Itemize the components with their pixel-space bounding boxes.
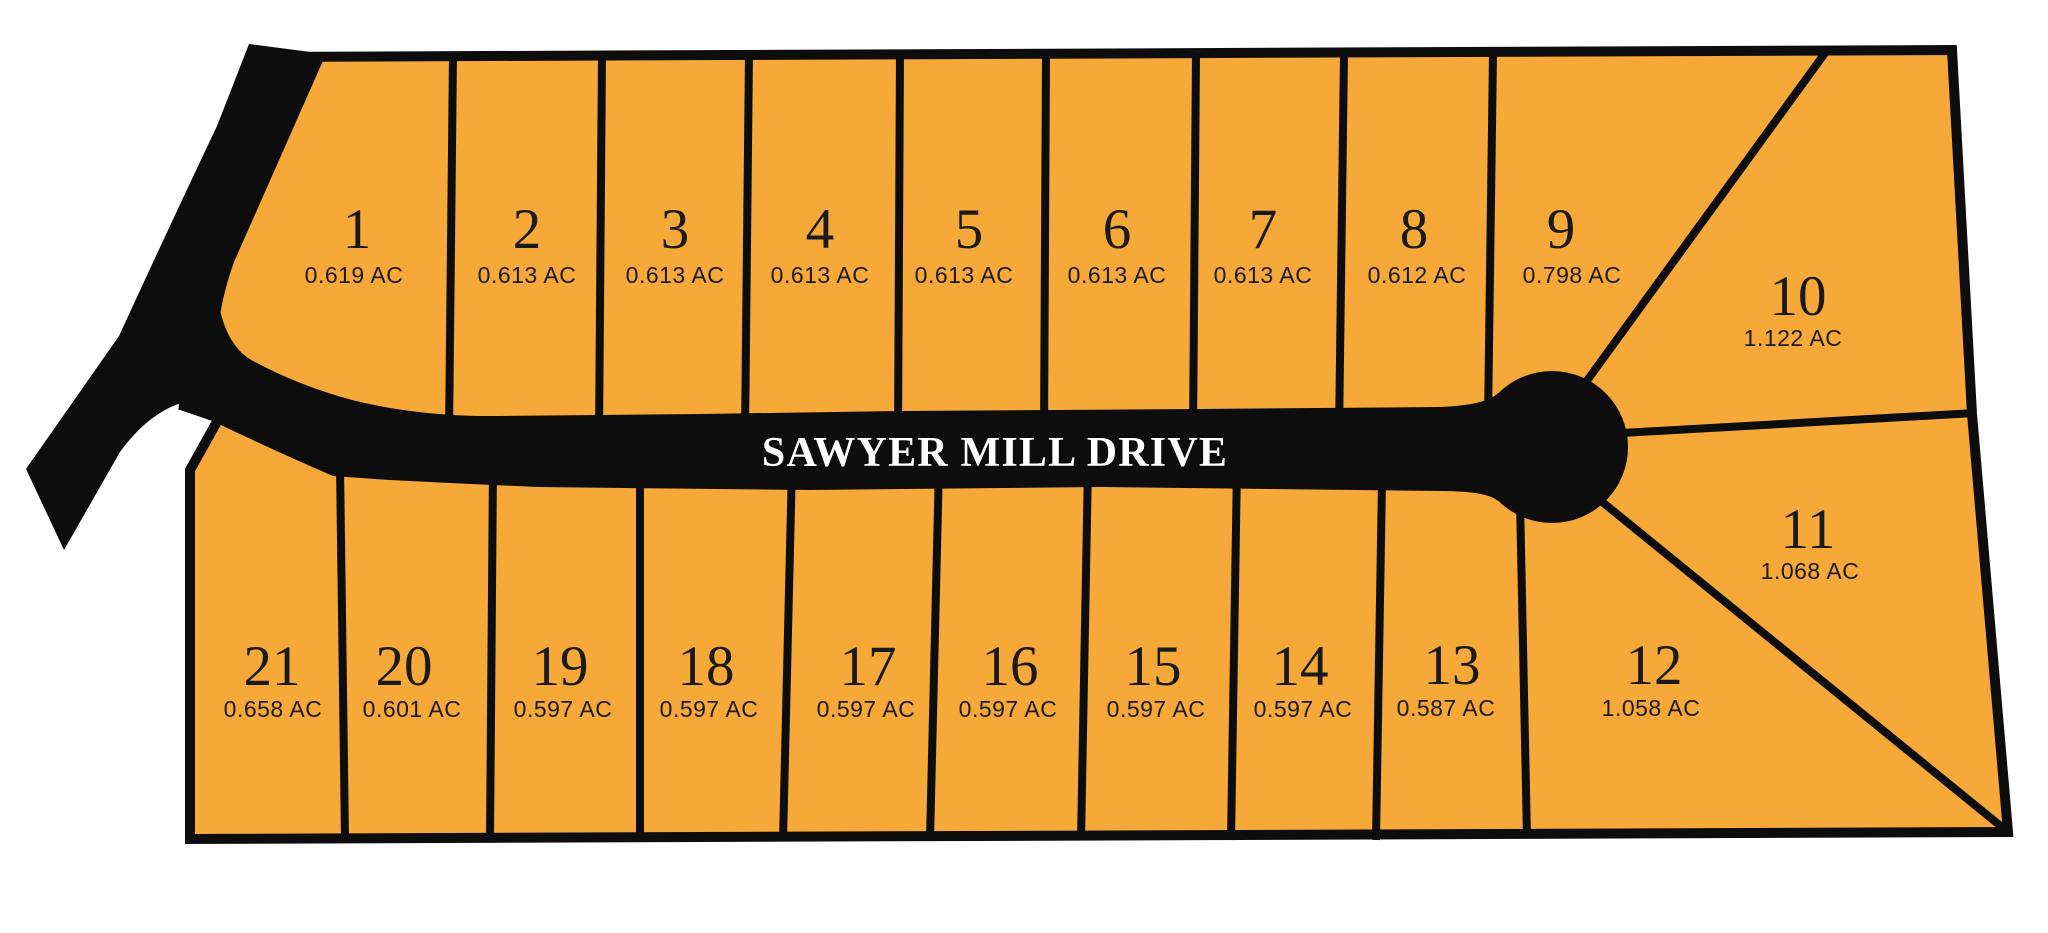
- svg-text:0.613 AC: 0.613 AC: [1068, 262, 1167, 288]
- svg-text:8: 8: [1400, 198, 1429, 261]
- svg-text:13: 13: [1424, 634, 1481, 697]
- svg-text:0.798 AC: 0.798 AC: [1523, 262, 1622, 288]
- svg-text:0.597 AC: 0.597 AC: [1254, 696, 1353, 722]
- svg-text:0.658 AC: 0.658 AC: [224, 696, 323, 722]
- svg-text:1.122 AC: 1.122 AC: [1744, 325, 1843, 351]
- svg-text:0.597 AC: 0.597 AC: [959, 696, 1058, 722]
- svg-text:17: 17: [840, 635, 897, 698]
- svg-text:0.587 AC: 0.587 AC: [1397, 695, 1496, 721]
- svg-text:19: 19: [532, 635, 589, 698]
- svg-text:4: 4: [806, 198, 835, 261]
- svg-text:0.613 AC: 0.613 AC: [626, 262, 725, 288]
- svg-text:2: 2: [513, 198, 542, 261]
- svg-text:1: 1: [343, 198, 372, 261]
- svg-text:18: 18: [678, 635, 735, 698]
- svg-text:9: 9: [1547, 198, 1576, 261]
- svg-text:16: 16: [982, 635, 1039, 698]
- svg-text:12: 12: [1626, 634, 1683, 697]
- svg-text:21: 21: [244, 635, 301, 698]
- svg-text:0.597 AC: 0.597 AC: [514, 696, 613, 722]
- svg-text:10: 10: [1770, 265, 1827, 328]
- svg-text:SAWYER MILL DRIVE: SAWYER MILL DRIVE: [762, 430, 1228, 476]
- svg-text:6: 6: [1103, 198, 1132, 261]
- svg-text:0.613 AC: 0.613 AC: [1214, 262, 1313, 288]
- svg-text:0.619 AC: 0.619 AC: [305, 262, 404, 288]
- svg-text:0.597 AC: 0.597 AC: [817, 696, 916, 722]
- svg-text:0.613 AC: 0.613 AC: [915, 262, 1014, 288]
- svg-text:11: 11: [1781, 498, 1836, 561]
- svg-text:0.597 AC: 0.597 AC: [660, 696, 759, 722]
- svg-text:14: 14: [1272, 635, 1329, 698]
- svg-text:5: 5: [955, 198, 984, 261]
- svg-text:0.612 AC: 0.612 AC: [1368, 262, 1467, 288]
- svg-text:3: 3: [661, 198, 690, 261]
- svg-text:1.058 AC: 1.058 AC: [1602, 695, 1701, 721]
- svg-text:7: 7: [1249, 198, 1278, 261]
- svg-text:0.601 AC: 0.601 AC: [363, 696, 462, 722]
- svg-text:1.068 AC: 1.068 AC: [1761, 558, 1860, 584]
- svg-text:0.613 AC: 0.613 AC: [478, 262, 577, 288]
- svg-text:20: 20: [376, 635, 433, 698]
- svg-text:0.613 AC: 0.613 AC: [771, 262, 870, 288]
- svg-text:0.597 AC: 0.597 AC: [1107, 696, 1206, 722]
- svg-text:15: 15: [1125, 635, 1182, 698]
